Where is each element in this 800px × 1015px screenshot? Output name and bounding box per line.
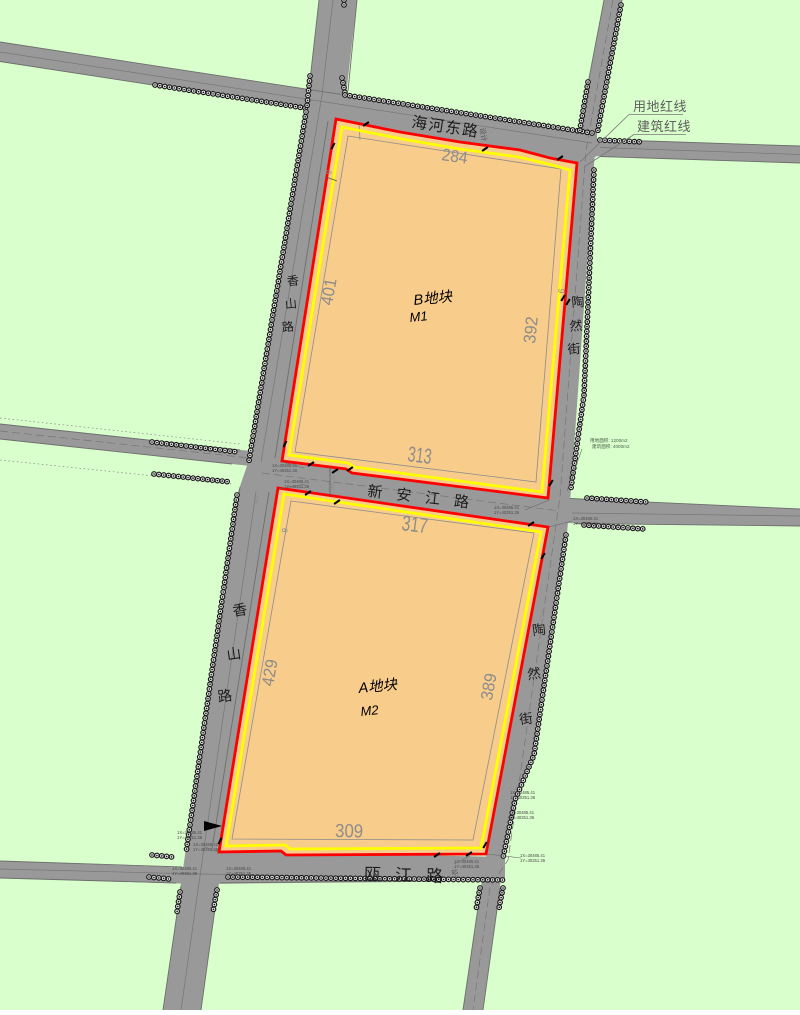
svg-text:香: 香 xyxy=(232,601,249,620)
svg-text:街: 街 xyxy=(567,341,581,357)
svg-text:317: 317 xyxy=(400,511,429,538)
svg-text:1Y=40251.36: 1Y=40251.36 xyxy=(510,795,536,800)
svg-text:1Y=40251.36: 1Y=40251.36 xyxy=(172,871,198,876)
svg-text:1Y=40251.36: 1Y=40251.36 xyxy=(454,864,480,869)
svg-text:1Y=40251.36: 1Y=40251.36 xyxy=(520,858,546,863)
svg-text:392: 392 xyxy=(520,316,542,345)
svg-text:M2: M2 xyxy=(360,702,380,719)
svg-text:1Y=40251.36: 1Y=40251.36 xyxy=(509,815,535,820)
svg-text:1Y=40251.36: 1Y=40251.36 xyxy=(226,871,252,876)
svg-text:建筑红线: 建筑红线 xyxy=(637,119,691,134)
svg-text:36.0: 36.0 xyxy=(326,476,336,491)
svg-text:M1: M1 xyxy=(409,308,429,325)
svg-text:陶: 陶 xyxy=(571,294,585,310)
svg-text:然: 然 xyxy=(569,318,583,334)
svg-text:1Y=40251.36: 1Y=40251.36 xyxy=(272,468,298,473)
svg-text:建筑面积: 4000m2: 建筑面积: 4000m2 xyxy=(592,443,630,450)
svg-text:然: 然 xyxy=(526,665,542,683)
svg-text:用地红线: 用地红线 xyxy=(633,99,687,114)
svg-text:313: 313 xyxy=(406,442,433,469)
svg-text:路: 路 xyxy=(217,687,234,706)
svg-text:用地面积: 1200m2: 用地面积: 1200m2 xyxy=(590,437,628,444)
svg-text:陶: 陶 xyxy=(531,622,546,639)
svg-text:284: 284 xyxy=(440,145,469,168)
svg-text:路: 路 xyxy=(281,318,295,334)
svg-text:香: 香 xyxy=(286,273,299,288)
svg-text:街: 街 xyxy=(518,711,533,728)
svg-text:瓯江路: 瓯江路 xyxy=(364,865,457,886)
svg-text:1Y=40251.36: 1Y=40251.36 xyxy=(177,835,203,840)
svg-text:山: 山 xyxy=(284,296,297,311)
svg-text:309: 309 xyxy=(335,821,363,842)
svg-text:1Y=40251.36: 1Y=40251.36 xyxy=(284,484,310,489)
svg-text:1Y=40251.36: 1Y=40251.36 xyxy=(494,510,520,515)
svg-text:1Y=40251.36: 1Y=40251.36 xyxy=(573,521,599,526)
svg-text:40: 40 xyxy=(253,495,261,504)
svg-text:山: 山 xyxy=(226,645,243,664)
